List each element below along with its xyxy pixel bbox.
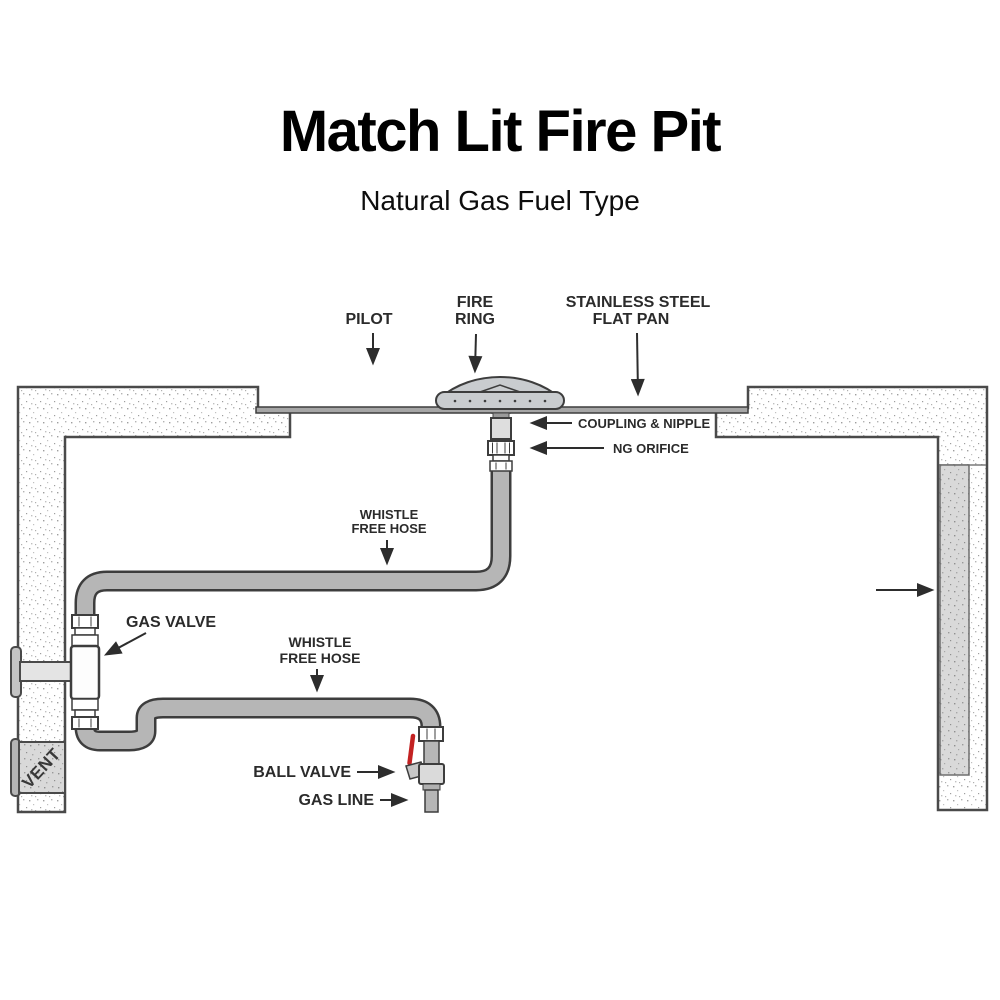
ball-valve-upper-pipe: [424, 741, 439, 766]
gas-line-label: GAS LINE: [298, 792, 374, 809]
diagram-canvas: VENT PILOT FIRE RING STAINLESS STEEL FLA…: [0, 0, 1000, 1000]
ball-valve-assembly: [406, 727, 444, 812]
fire-ring: [436, 377, 564, 409]
right-wall-inner-panel: [940, 465, 969, 775]
gas-valve-arrow: [107, 633, 146, 654]
ng-orifice-label: NG ORIFICE: [613, 441, 689, 456]
whistle-hose-lower-label-line1: WHISTLE: [289, 634, 352, 650]
valve-bottom-ring: [75, 710, 95, 717]
flat-pan-label-line2: FLAT PAN: [593, 311, 670, 328]
orifice-ring: [493, 455, 509, 461]
callouts: PILOT FIRE RING STAINLESS STEEL FLAT PAN…: [107, 294, 931, 809]
fire-ring-label-line1: FIRE: [457, 294, 494, 311]
valve-top-nut-2: [72, 635, 98, 646]
valve-top-nut: [72, 615, 98, 628]
valve-bottom-nut: [72, 699, 98, 710]
hose-upper-outline: [85, 467, 501, 621]
valve-stem: [20, 662, 74, 681]
orifice-lower-nut: [490, 461, 512, 471]
gas-line-pipe: [425, 790, 438, 812]
whistle-free-hose-upper: [85, 467, 501, 621]
ball-valve-lever: [410, 736, 414, 763]
whistle-hose-upper-label-line2: FREE HOSE: [351, 521, 426, 536]
vent: VENT: [11, 739, 65, 796]
gas-valve-label: GAS VALVE: [126, 614, 216, 631]
gas-valve-body: [71, 646, 99, 699]
flat-pan-arrow: [637, 333, 638, 393]
right-enclosure-wall: [716, 387, 987, 810]
fire-ring-arrow: [475, 334, 476, 370]
coupling-and-nipple: [491, 413, 511, 439]
fire-pit-diagram-page: Match Lit Fire Pit Natural Gas Fuel Type: [0, 0, 1000, 1000]
whistle-hose-upper-label-line1: WHISTLE: [360, 507, 419, 522]
ng-orifice: [488, 441, 514, 471]
whistle-hose-lower-label-line2: FREE HOSE: [280, 650, 361, 666]
hose-upper-body: [85, 467, 501, 621]
ball-valve-label: BALL VALVE: [253, 764, 351, 781]
valve-bottom-nut-2: [72, 717, 98, 729]
ball-valve-body: [419, 764, 444, 784]
flat-pan-label-line1: STAINLESS STEEL: [566, 294, 711, 311]
gasline-coupling-nut: [419, 727, 443, 741]
valve-top-ring: [75, 628, 95, 635]
fire-ring-label-line2: RING: [455, 311, 495, 328]
orifice-nut: [488, 441, 514, 455]
coupling-body: [491, 418, 511, 439]
coupling-nipple-label: COUPLING & NIPPLE: [578, 416, 711, 431]
pilot-label: PILOT: [345, 311, 392, 328]
whistle-free-hose-lower: [85, 708, 431, 741]
ball-valve-collar: [423, 784, 440, 790]
